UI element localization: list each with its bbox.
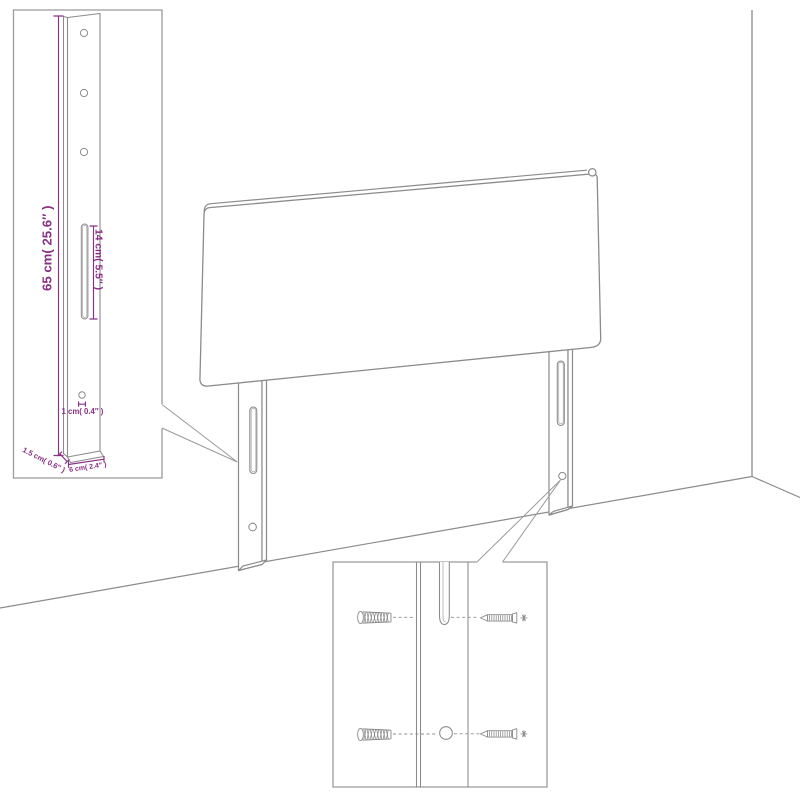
floor-line-right xyxy=(752,477,800,498)
dim-thickness-label: 1.5 cm( 0.6″ ) xyxy=(21,445,67,474)
dim-hole-label: 1 cm( 0.4″ ) xyxy=(62,407,104,416)
wall-plug-bottom xyxy=(358,728,391,740)
headboard-panel xyxy=(200,169,601,386)
screw-bottom xyxy=(481,729,528,739)
dim-hole-bracket xyxy=(79,402,86,407)
wall-plug-top xyxy=(358,611,391,623)
top-corner-fold xyxy=(589,169,596,176)
left-leg-hole xyxy=(249,523,257,531)
left-leg xyxy=(239,377,267,571)
screw-hole-middle xyxy=(80,89,87,96)
diagram-canvas: 65 cm( 25.6″ ) 14 cm( 5.5″ ) 1 cm( 0.4″ … xyxy=(0,0,800,800)
screw-hole-top xyxy=(80,29,87,36)
dim-height-line xyxy=(54,16,64,456)
screw-top xyxy=(481,613,528,623)
small-mount-hole xyxy=(79,392,85,398)
right-leg xyxy=(549,344,573,515)
screw-hole-lower xyxy=(80,148,87,155)
mounting-leg-strip xyxy=(417,562,469,787)
mounting-slot-detail xyxy=(440,562,450,625)
floor-line-left xyxy=(0,477,752,609)
callout-lines-mounting xyxy=(477,480,561,562)
headboard-assembly-diagram: 65 cm( 25.6″ ) 14 cm( 5.5″ ) 1 cm( 0.4″ … xyxy=(0,0,800,800)
callout-lines-left-leg xyxy=(162,405,237,463)
dim-slot-label: 14 cm( 5.5″ ) xyxy=(93,229,104,290)
right-leg-hole xyxy=(559,472,566,479)
mounting-detail-inset xyxy=(333,562,547,787)
leg-detail-inset: 65 cm( 25.6″ ) 14 cm( 5.5″ ) 1 cm( 0.4″ … xyxy=(14,10,163,478)
mounting-hole-detail xyxy=(440,727,453,740)
dim-height-label: 65 cm( 25.6″ ) xyxy=(40,206,55,292)
alignment-dashes xyxy=(393,617,480,734)
